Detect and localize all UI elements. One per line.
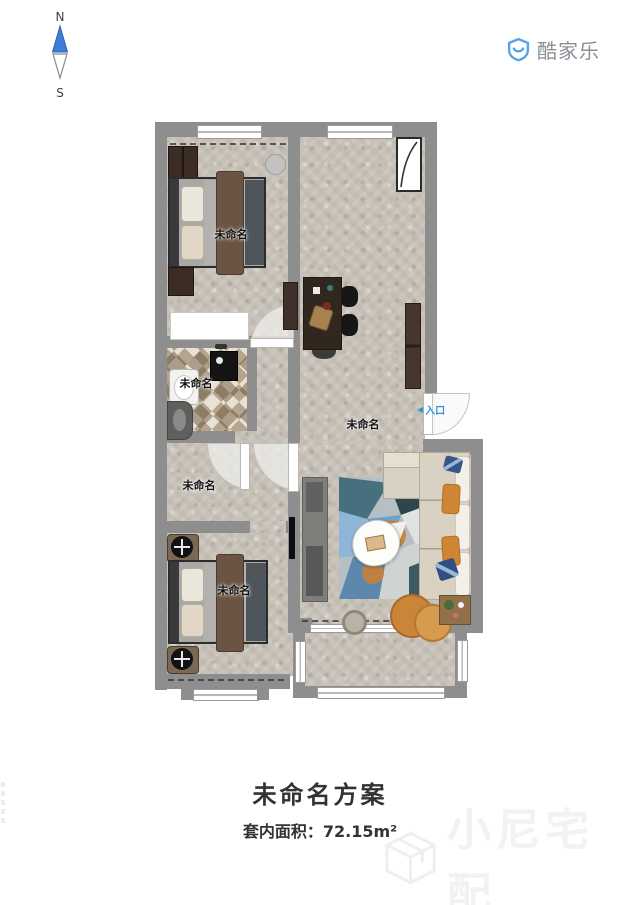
plan-title: 未命名方案 bbox=[0, 775, 640, 810]
hall-label: 未命名 bbox=[169, 477, 229, 493]
living-top-window bbox=[327, 125, 393, 139]
lamp-bottom bbox=[171, 648, 193, 670]
bed-pillow-2 bbox=[181, 604, 204, 637]
wall-right-upper bbox=[425, 122, 437, 395]
wall-right-lower bbox=[471, 439, 483, 633]
bedroom1-bay-shelf bbox=[170, 312, 249, 340]
tv-screen bbox=[289, 517, 295, 559]
wall-bedroom-bottom bbox=[155, 674, 290, 689]
floorplan-export-page: N S 酷家乐 bbox=[0, 0, 640, 905]
bed-runner-top bbox=[216, 171, 244, 275]
bay-post-left bbox=[181, 689, 193, 700]
bathroom-label: 未命名 bbox=[166, 375, 226, 391]
wall-bathroom-right bbox=[247, 344, 257, 431]
entry-door-panel bbox=[396, 137, 422, 192]
faucet-icon bbox=[215, 344, 227, 349]
dresser bbox=[168, 267, 194, 296]
floor-plan: ◀ 入口 未命名 未命名 未命名 bbox=[0, 0, 640, 760]
bed-dark-throw bbox=[245, 180, 264, 265]
book bbox=[365, 535, 386, 552]
dining-chair-2 bbox=[340, 314, 358, 336]
watermark: 小尼宅配 bbox=[382, 794, 640, 905]
bed-dark-throw bbox=[246, 563, 266, 641]
entrance-label: ◀ 入口 bbox=[417, 402, 445, 417]
dining-bench bbox=[283, 282, 298, 330]
wardrobe bbox=[168, 146, 198, 179]
bed-headboard bbox=[170, 562, 179, 642]
dining-chair-1 bbox=[340, 286, 358, 307]
round-stool bbox=[342, 610, 367, 635]
bed-headboard bbox=[170, 179, 179, 266]
bedroom-top-window bbox=[197, 125, 262, 139]
bedroom2-curtain-line bbox=[168, 679, 284, 681]
bed-runner-bottom bbox=[216, 554, 244, 652]
plan-area: 套内面积：72.15m² bbox=[0, 818, 640, 842]
tv-cabinet bbox=[302, 477, 328, 602]
balcony-window-left bbox=[295, 641, 306, 683]
ceiling-stool bbox=[265, 154, 286, 175]
plant bbox=[444, 600, 454, 610]
wall-center-vertical-lower bbox=[288, 490, 300, 633]
entrance-text: 入口 bbox=[425, 402, 445, 417]
bedroom-bottom-window bbox=[193, 689, 259, 701]
watermark-text: 小尼宅配 bbox=[447, 794, 640, 905]
balcony-window-bottom bbox=[317, 687, 445, 699]
bay-post-right bbox=[257, 689, 269, 700]
balcony-window-right bbox=[457, 640, 468, 682]
entrance-arrow-icon: ◀ bbox=[417, 405, 423, 414]
bed-pillow-1 bbox=[181, 568, 204, 602]
door-opening-bedroom2 bbox=[250, 521, 286, 533]
bed-pillow-1 bbox=[181, 186, 204, 222]
orange-pillow-1 bbox=[441, 484, 461, 515]
bedroom-top-label: 未命名 bbox=[201, 226, 261, 242]
entry-console bbox=[405, 303, 421, 389]
bedroom-bottom-label: 未命名 bbox=[204, 582, 264, 598]
bedroom1-door-leaf bbox=[250, 338, 294, 348]
dining-table bbox=[303, 277, 342, 350]
shower bbox=[167, 401, 193, 440]
side-table bbox=[439, 595, 471, 625]
bathroom-door-leaf bbox=[240, 443, 250, 490]
bedroom1-curtain-line bbox=[170, 143, 286, 145]
lamp-top bbox=[171, 536, 193, 558]
living-label: 未命名 bbox=[333, 416, 393, 432]
wall-left bbox=[155, 122, 167, 690]
hall-door-leaf bbox=[288, 443, 299, 492]
